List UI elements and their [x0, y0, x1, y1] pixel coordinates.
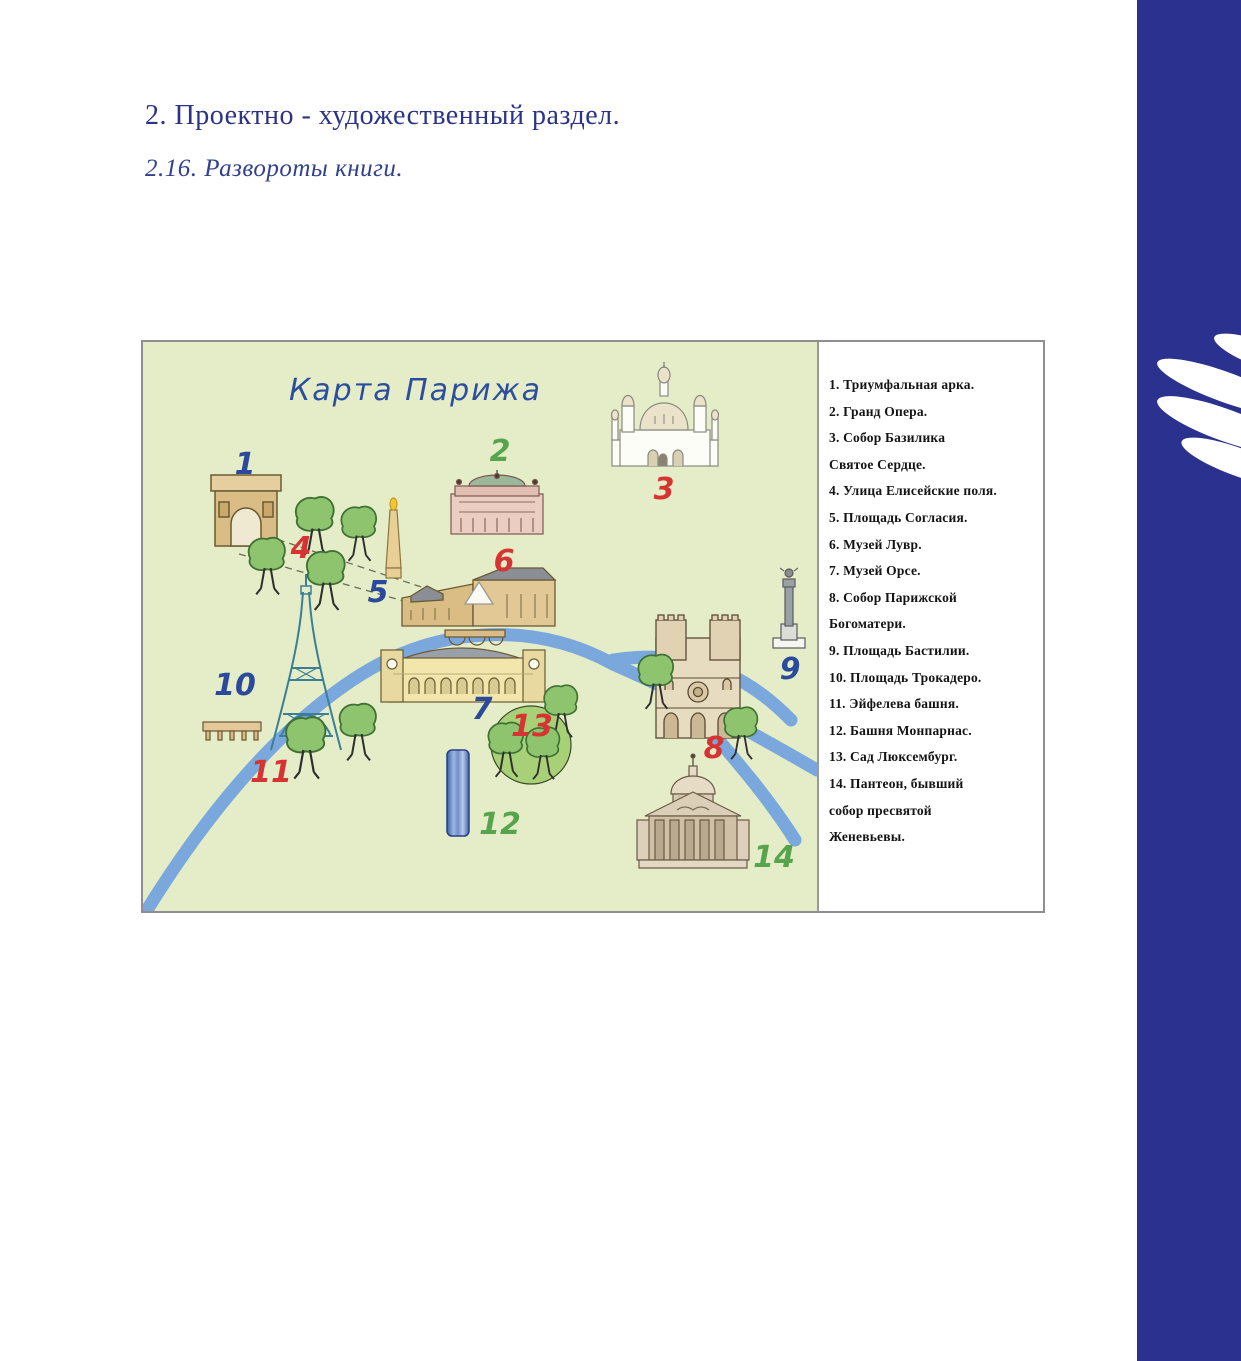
- map-marker-2: 2: [490, 434, 511, 469]
- sacre-coeur-illustration: [612, 362, 719, 466]
- book-spread-figure: Карта Парижа 1 2 3 4 5 6 7 8 9 10 11 12 …: [141, 340, 1045, 913]
- legend-line: 14. Пантеон, бывший: [829, 771, 1037, 798]
- legend-line: Святое Сердце.: [829, 452, 1037, 479]
- map-marker-4: 4: [290, 531, 312, 566]
- legend-line: 9. Площадь Бастилии.: [829, 638, 1037, 665]
- opera-garnier-illustration: [451, 470, 543, 534]
- pantheon-illustration: [637, 754, 749, 868]
- map-marker-3: 3: [654, 472, 675, 507]
- trocadero-illustration: [203, 722, 261, 740]
- legend-line: 3. Собор Базилика: [829, 425, 1037, 452]
- legend-line: 11. Эйфелева башня.: [829, 691, 1037, 718]
- blue-side-band: [1137, 0, 1241, 1361]
- map-legend-panel: 1. Триумфальная арка.2. Гранд Опера.3. С…: [817, 342, 1043, 911]
- map-marker-1: 1: [235, 447, 256, 482]
- legend-line: 8. Собор Парижской: [829, 585, 1037, 612]
- map-title: Карта Парижа: [289, 373, 542, 408]
- legend-line: 6. Музей Лувр.: [829, 532, 1037, 559]
- map-marker-11: 11: [250, 755, 292, 790]
- map-marker-6: 6: [494, 544, 515, 579]
- section-heading: 2. Проектно - художественный раздел.: [145, 100, 620, 132]
- montparnasse-tower-illustration: [447, 750, 469, 836]
- legend-line: 7. Музей Орсе.: [829, 558, 1037, 585]
- legend-line: 1. Триумфальная арка.: [829, 372, 1037, 399]
- legend-line: собор пресвятой: [829, 798, 1037, 825]
- arc-de-triomphe-illustration: [211, 475, 281, 546]
- paris-map-panel: Карта Парижа 1 2 3 4 5 6 7 8 9 10 11 12 …: [143, 342, 817, 911]
- map-marker-7: 7: [472, 692, 493, 727]
- map-marker-9: 9: [780, 652, 801, 687]
- legend-line: Богоматери.: [829, 611, 1037, 638]
- louvre-illustration: [402, 568, 555, 626]
- map-marker-13: 13: [511, 709, 553, 744]
- legend-list: 1. Триумфальная арка.2. Гранд Опера.3. С…: [829, 372, 1037, 851]
- map-marker-8: 8: [704, 731, 725, 766]
- map-marker-5: 5: [368, 575, 389, 610]
- map-marker-10: 10: [214, 668, 256, 703]
- legend-line: 10. Площадь Трокадеро.: [829, 665, 1037, 692]
- concorde-obelisk-illustration: [386, 498, 401, 578]
- legend-line: 12. Башня Монпарнас.: [829, 718, 1037, 745]
- subsection-heading: 2.16. Развороты книги.: [145, 155, 403, 183]
- legend-line: 4. Улица Елисейские поля.: [829, 478, 1037, 505]
- legend-line: Женевьевы.: [829, 824, 1037, 851]
- legend-line: 13. Сад Люксембург.: [829, 744, 1037, 771]
- map-marker-12: 12: [479, 807, 521, 842]
- bastille-column-illustration: [773, 568, 805, 648]
- feather-strokes-decoration: [1137, 0, 1241, 1361]
- paris-map-illustration: Карта Парижа 1 2 3 4 5 6 7 8 9 10 11 12 …: [143, 342, 817, 911]
- legend-line: 2. Гранд Опера.: [829, 399, 1037, 426]
- map-marker-14: 14: [753, 840, 795, 875]
- legend-line: 5. Площадь Согласия.: [829, 505, 1037, 532]
